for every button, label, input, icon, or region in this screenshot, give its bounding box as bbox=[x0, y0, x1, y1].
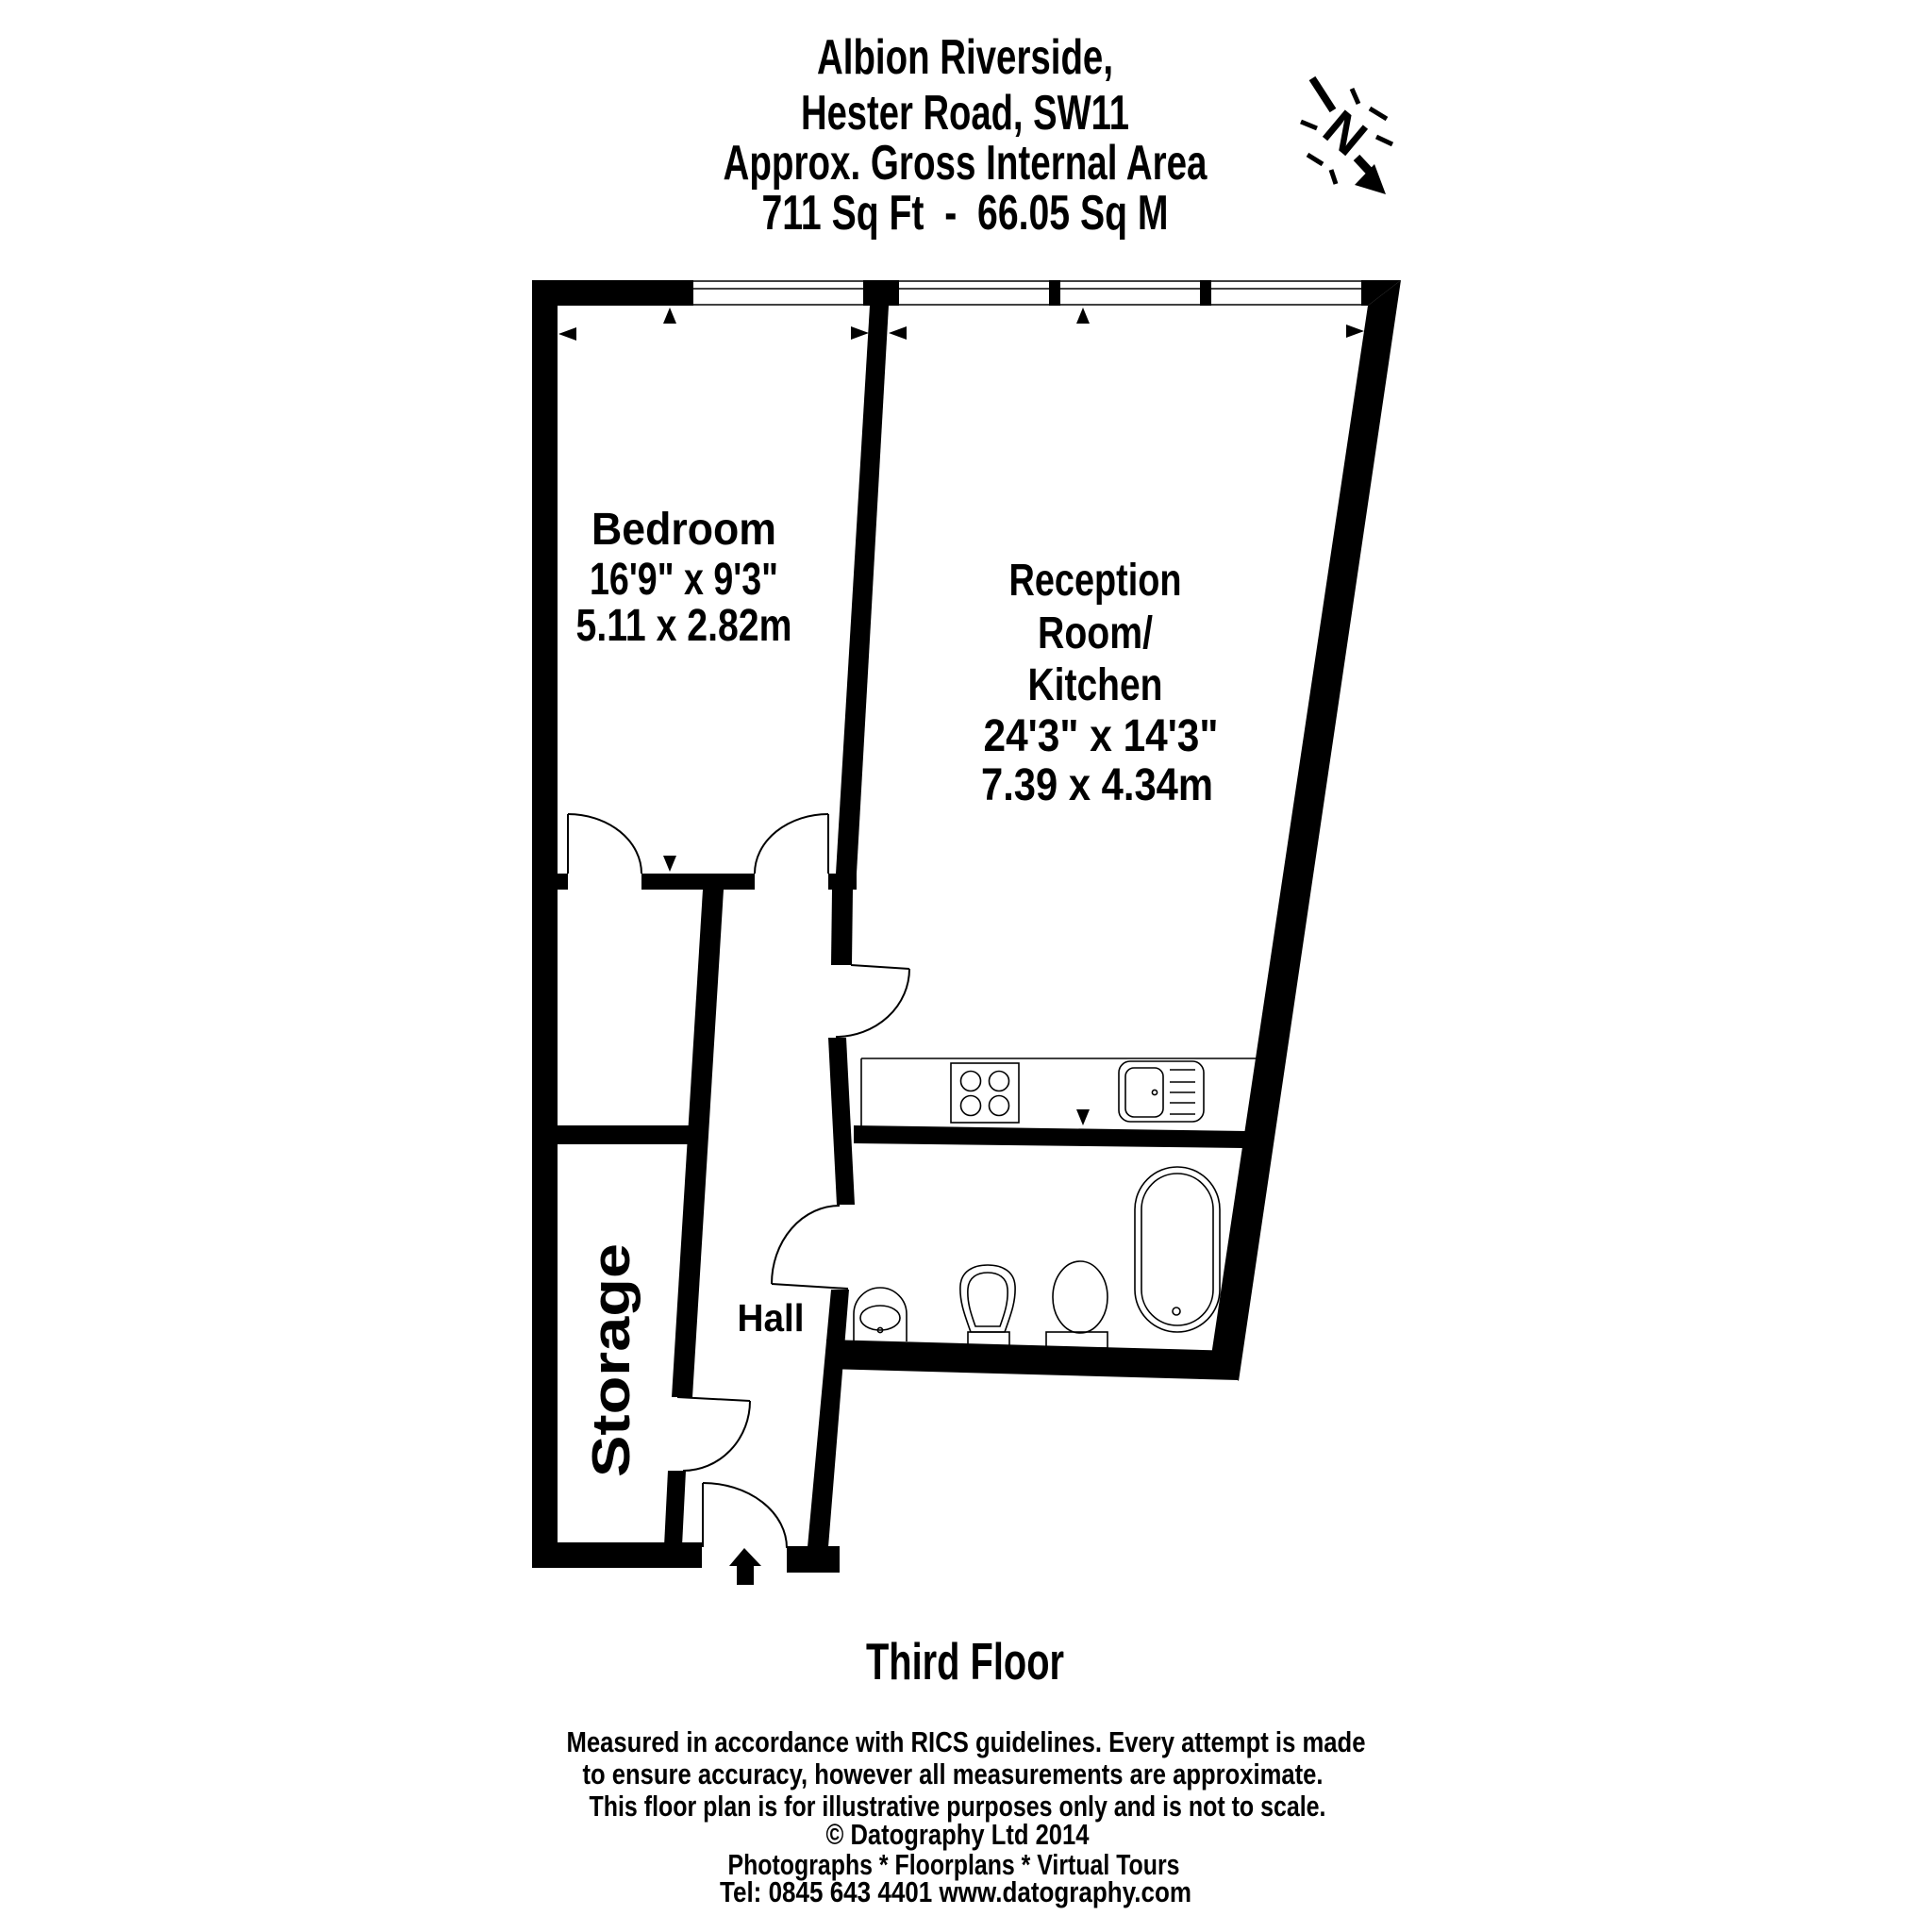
svg-text:16'9" x 9'3": 16'9" x 9'3" bbox=[590, 555, 778, 605]
svg-text:Third Floor: Third Floor bbox=[866, 1632, 1064, 1690]
svg-text:Bedroom: Bedroom bbox=[591, 505, 776, 555]
svg-text:7.39 x 4.34m: 7.39 x 4.34m bbox=[981, 760, 1213, 810]
svg-text:Storage: Storage bbox=[581, 1243, 641, 1477]
svg-text:Kitchen: Kitchen bbox=[1028, 660, 1163, 710]
svg-text:24'3" x 14'3": 24'3" x 14'3" bbox=[984, 711, 1219, 761]
svg-text:Hall: Hall bbox=[738, 1296, 805, 1340]
svg-text:Albion Riverside,: Albion Riverside, bbox=[817, 30, 1113, 85]
svg-text:© Datography Ltd 2014: © Datography Ltd 2014 bbox=[826, 1818, 1091, 1851]
svg-text:711 Sq Ft - 66.05 Sq M: 711 Sq Ft - 66.05 Sq M bbox=[762, 186, 1169, 241]
svg-text:Tel: 0845 643 4401 www.datogra: Tel: 0845 643 4401 www.datography.com bbox=[720, 1875, 1191, 1908]
svg-text:Room/: Room/ bbox=[1038, 608, 1153, 658]
svg-text:Approx. Gross Internal Area: Approx. Gross Internal Area bbox=[724, 136, 1208, 191]
svg-text:Reception: Reception bbox=[1009, 556, 1182, 606]
svg-text:to ensure accuracy, however al: to ensure accuracy, however all measurem… bbox=[583, 1757, 1324, 1790]
svg-text:5.11 x 2.82m: 5.11 x 2.82m bbox=[576, 601, 792, 651]
svg-text:Measured in accordance with RI: Measured in accordance with RICS guideli… bbox=[567, 1725, 1366, 1758]
svg-text:Hester Road, SW11: Hester Road, SW11 bbox=[801, 86, 1129, 141]
